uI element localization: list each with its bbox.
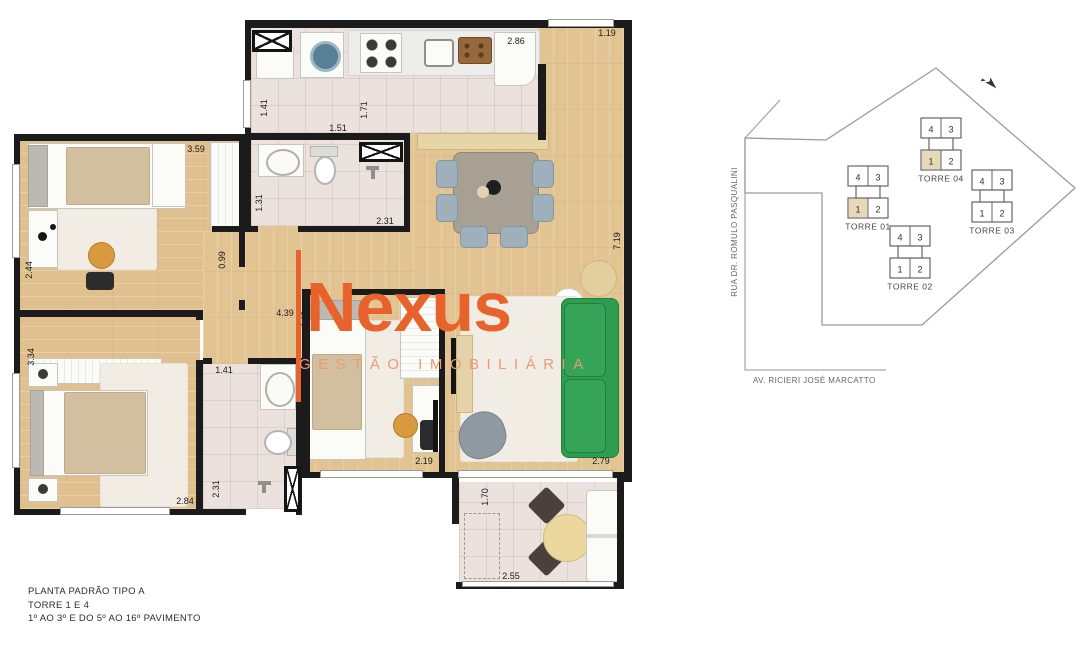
title-block: PLANTA PADRÃO TIPO A TORRE 1 E 4 1º AO 3…	[28, 585, 201, 626]
dim-label: 2.86	[507, 36, 525, 46]
bedroom1-headboard	[28, 145, 48, 207]
svg-text:TORRE 04: TORRE 04	[918, 174, 963, 184]
wall	[304, 472, 320, 478]
wall	[14, 468, 20, 515]
svg-text:3: 3	[917, 233, 922, 243]
shaft-x	[284, 466, 301, 512]
balcony-table	[543, 514, 591, 562]
dining-chair	[436, 194, 458, 222]
wall	[617, 478, 624, 589]
bedroom2-headboard	[30, 390, 44, 476]
floors-line: 1º AO 3º E DO 5º AO 16º PAVIMENTO	[28, 612, 201, 626]
window	[60, 507, 170, 515]
dim-label: 2.31	[376, 216, 394, 226]
wall	[14, 134, 20, 164]
bedroom1-office-chair	[86, 272, 114, 290]
svg-text:1: 1	[928, 157, 933, 167]
sofa-cushion	[564, 379, 606, 453]
dining-chair	[532, 194, 554, 222]
dim-label: 7.19	[612, 232, 622, 250]
bath2-toilet-bowl	[264, 430, 292, 455]
shower-fixture-icon	[371, 166, 375, 179]
svg-text:4: 4	[855, 173, 860, 183]
svg-text:2: 2	[875, 205, 880, 215]
svg-text:1: 1	[897, 265, 902, 275]
dining-chair	[532, 160, 554, 188]
bedroom3-stool	[393, 413, 418, 438]
wall	[196, 310, 203, 320]
street-label-bottom: AV. RICIERI JOSÉ MARCATTO	[753, 376, 876, 385]
washer-drum-icon	[310, 41, 341, 72]
wall	[245, 133, 410, 140]
desk-decor	[50, 224, 56, 230]
kitchen-sink	[424, 39, 454, 67]
svg-text:4: 4	[979, 177, 984, 187]
living-sideboard	[456, 335, 473, 413]
dim-label: 3.59	[187, 144, 205, 154]
bath1-sink	[266, 149, 300, 176]
svg-text:2: 2	[948, 157, 953, 167]
window	[12, 373, 20, 468]
round-pouf	[580, 260, 617, 297]
sliding-door	[458, 470, 613, 478]
wall	[239, 232, 245, 267]
wall	[212, 226, 258, 232]
wall	[404, 140, 410, 232]
shower-fixture-icon	[262, 481, 266, 493]
wall	[239, 300, 245, 310]
dim-label: 1.70	[480, 488, 490, 506]
svg-text:2: 2	[999, 209, 1004, 219]
wall	[14, 509, 60, 515]
wall	[170, 509, 246, 515]
dining-chair	[460, 226, 488, 248]
logo-bar	[296, 250, 301, 402]
wall	[14, 134, 251, 141]
wall	[423, 472, 445, 478]
dim-label: 1.41	[215, 365, 233, 375]
svg-text:TORRE 03: TORRE 03	[969, 226, 1014, 236]
logo-brand: Nexus	[306, 272, 511, 342]
dim-label: 4.39	[276, 308, 294, 318]
wall	[239, 140, 251, 232]
bedroom3-tv	[433, 400, 438, 452]
svg-text:3: 3	[948, 125, 953, 135]
bar-counter	[417, 133, 549, 150]
dim-label: 2.19	[415, 456, 433, 466]
bedroom2-blanket	[64, 392, 146, 474]
plan-type-line: PLANTA PADRÃO TIPO A	[28, 585, 201, 599]
bedroom1-stool	[88, 242, 115, 269]
tower-01: 4 3 1 2 TORRE 01	[845, 166, 890, 232]
north-arrow-icon	[980, 74, 999, 93]
dim-label: 0.99	[217, 251, 227, 269]
dining-chair	[500, 226, 528, 248]
wall	[196, 360, 203, 515]
tower-03: 4 3 1 2 TORRE 03	[969, 170, 1014, 236]
wall	[248, 358, 302, 364]
window	[243, 80, 251, 128]
dim-label: 1.51	[329, 123, 347, 133]
wall	[14, 310, 203, 317]
wall	[538, 64, 546, 140]
logo-subtitle: GESTÃO IMOBILIÁRIA	[299, 356, 591, 373]
wall	[298, 226, 410, 232]
grill-tray	[458, 37, 492, 64]
wall	[452, 478, 459, 524]
bath1-toilet-bowl	[314, 156, 336, 185]
dim-label: 1.41	[259, 99, 269, 117]
dim-label: 1.31	[254, 194, 264, 212]
svg-text:1: 1	[855, 205, 860, 215]
dim-label: 3.34	[26, 348, 36, 366]
entry-door	[548, 19, 614, 27]
tower-04: 4 3 1 2 TORRE 04	[918, 118, 963, 184]
shaft-x	[359, 142, 403, 162]
balcony-railing	[462, 581, 614, 587]
svg-text:3: 3	[875, 173, 880, 183]
site-plan: RUA DR. ROMULO PASQUALINI AV. RICIERI JO…	[695, 40, 1092, 405]
svg-text:2: 2	[917, 265, 922, 275]
window	[320, 470, 423, 478]
nightstand-lamp-icon	[38, 369, 48, 379]
wall	[245, 20, 251, 80]
balcony-ac-space	[464, 513, 500, 579]
dim-label: 1.19	[598, 28, 616, 38]
tower-02: 4 3 1 2 TORRE 02	[887, 226, 932, 292]
street-label-left: RUA DR. ROMULO PASQUALINI	[730, 167, 739, 296]
balcony-sofa	[586, 490, 619, 582]
shaft-x	[252, 30, 292, 52]
table-decor	[477, 186, 489, 198]
page: 1.19 2.86 1.41 1.51 1.71 3.59 1.31 2.31 …	[0, 0, 1092, 650]
dim-label: 2.31	[211, 480, 221, 498]
desk-decor	[38, 232, 47, 241]
stove	[360, 33, 402, 73]
bedroom1-shelf	[152, 143, 186, 207]
bath2-sink	[265, 372, 295, 407]
dim-label: 2.44	[24, 261, 34, 279]
svg-text:4: 4	[897, 233, 902, 243]
tower-line: TORRE 1 E 4	[28, 599, 201, 613]
svg-text:4: 4	[928, 125, 933, 135]
nightstand-lamp-icon	[38, 484, 48, 494]
dim-label: 2.79	[592, 456, 610, 466]
wall	[203, 358, 212, 364]
dim-label: 2.84	[176, 496, 194, 506]
window	[12, 164, 20, 258]
dining-chair	[436, 160, 458, 188]
svg-text:3: 3	[999, 177, 1004, 187]
bedroom1-blanket	[66, 147, 150, 205]
svg-text:TORRE 01: TORRE 01	[845, 222, 890, 232]
dim-label: 2.55	[502, 571, 520, 581]
svg-text:TORRE 02: TORRE 02	[887, 282, 932, 292]
svg-text:1: 1	[979, 209, 984, 219]
dim-label: 1.71	[359, 101, 369, 119]
wall	[624, 20, 632, 482]
